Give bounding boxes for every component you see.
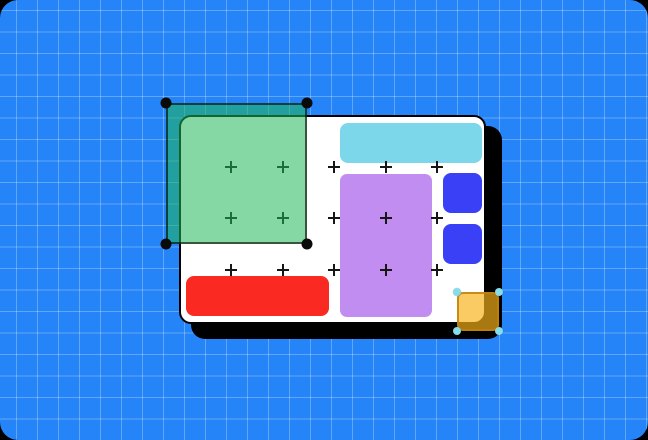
resize-handle-bottom-left-icon[interactable] xyxy=(453,327,461,335)
shape-red-bar[interactable] xyxy=(186,276,329,316)
selected-yellow-square[interactable] xyxy=(457,292,499,331)
shape-cyan-bar[interactable] xyxy=(340,123,482,163)
selection-handle-bottom-left-icon[interactable] xyxy=(161,239,172,250)
page-outer: { "scene": { "description": "Illustratio… xyxy=(0,0,648,440)
resize-handle-top-right-icon[interactable] xyxy=(495,288,503,296)
shape-purple-rectangle[interactable] xyxy=(340,174,432,317)
shape-blue-square-bottom[interactable] xyxy=(443,224,482,264)
selection-handle-top-left-icon[interactable] xyxy=(161,98,172,109)
selection-handle-top-right-icon[interactable] xyxy=(302,98,313,109)
resize-handle-bottom-right-icon[interactable] xyxy=(495,327,503,335)
blueprint-background xyxy=(0,0,648,440)
selection-handle-bottom-right-icon[interactable] xyxy=(302,239,313,250)
shape-blue-square-top[interactable] xyxy=(443,173,482,213)
selection-marquee-green[interactable] xyxy=(166,103,307,244)
resize-handle-top-left-icon[interactable] xyxy=(453,288,461,296)
